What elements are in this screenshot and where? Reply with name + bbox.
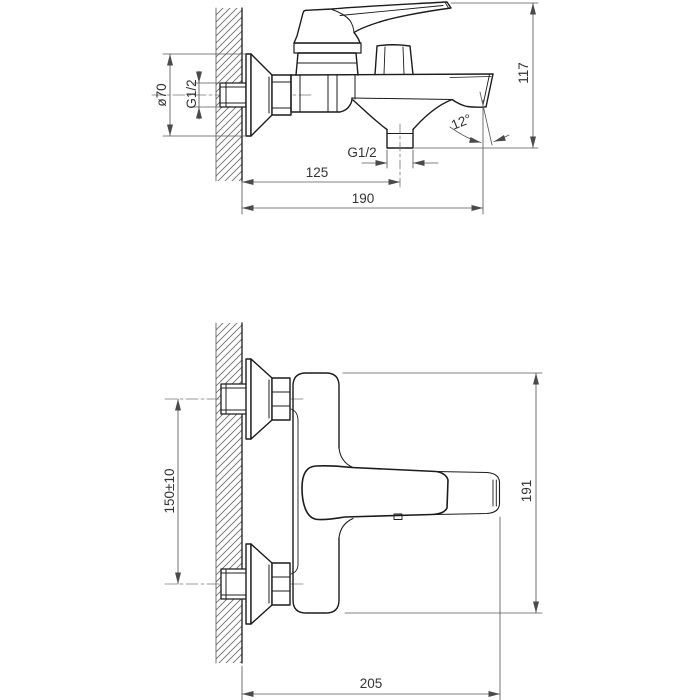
label-190: 190 <box>352 191 375 206</box>
label-150: 150±10 <box>162 469 177 514</box>
label-g12-wall: G1/2 <box>184 79 199 108</box>
label-125: 125 <box>306 165 329 180</box>
label-191: 191 <box>519 480 534 503</box>
wall-section-plan <box>216 323 242 663</box>
hex-nut <box>272 75 291 115</box>
lever-handle-plan <box>302 466 500 520</box>
label-205: 205 <box>360 676 383 691</box>
label-g12-outlet: G1/2 <box>347 145 376 160</box>
faucet-technical-drawing: ø70 G1/2 117 12° G1/2 125 190 <box>0 0 700 700</box>
drawing-page: ø70 G1/2 117 12° G1/2 125 190 <box>0 0 700 700</box>
label-117: 117 <box>516 62 531 84</box>
label-dia70: ø70 <box>154 83 169 106</box>
wall-nipple <box>220 83 246 107</box>
